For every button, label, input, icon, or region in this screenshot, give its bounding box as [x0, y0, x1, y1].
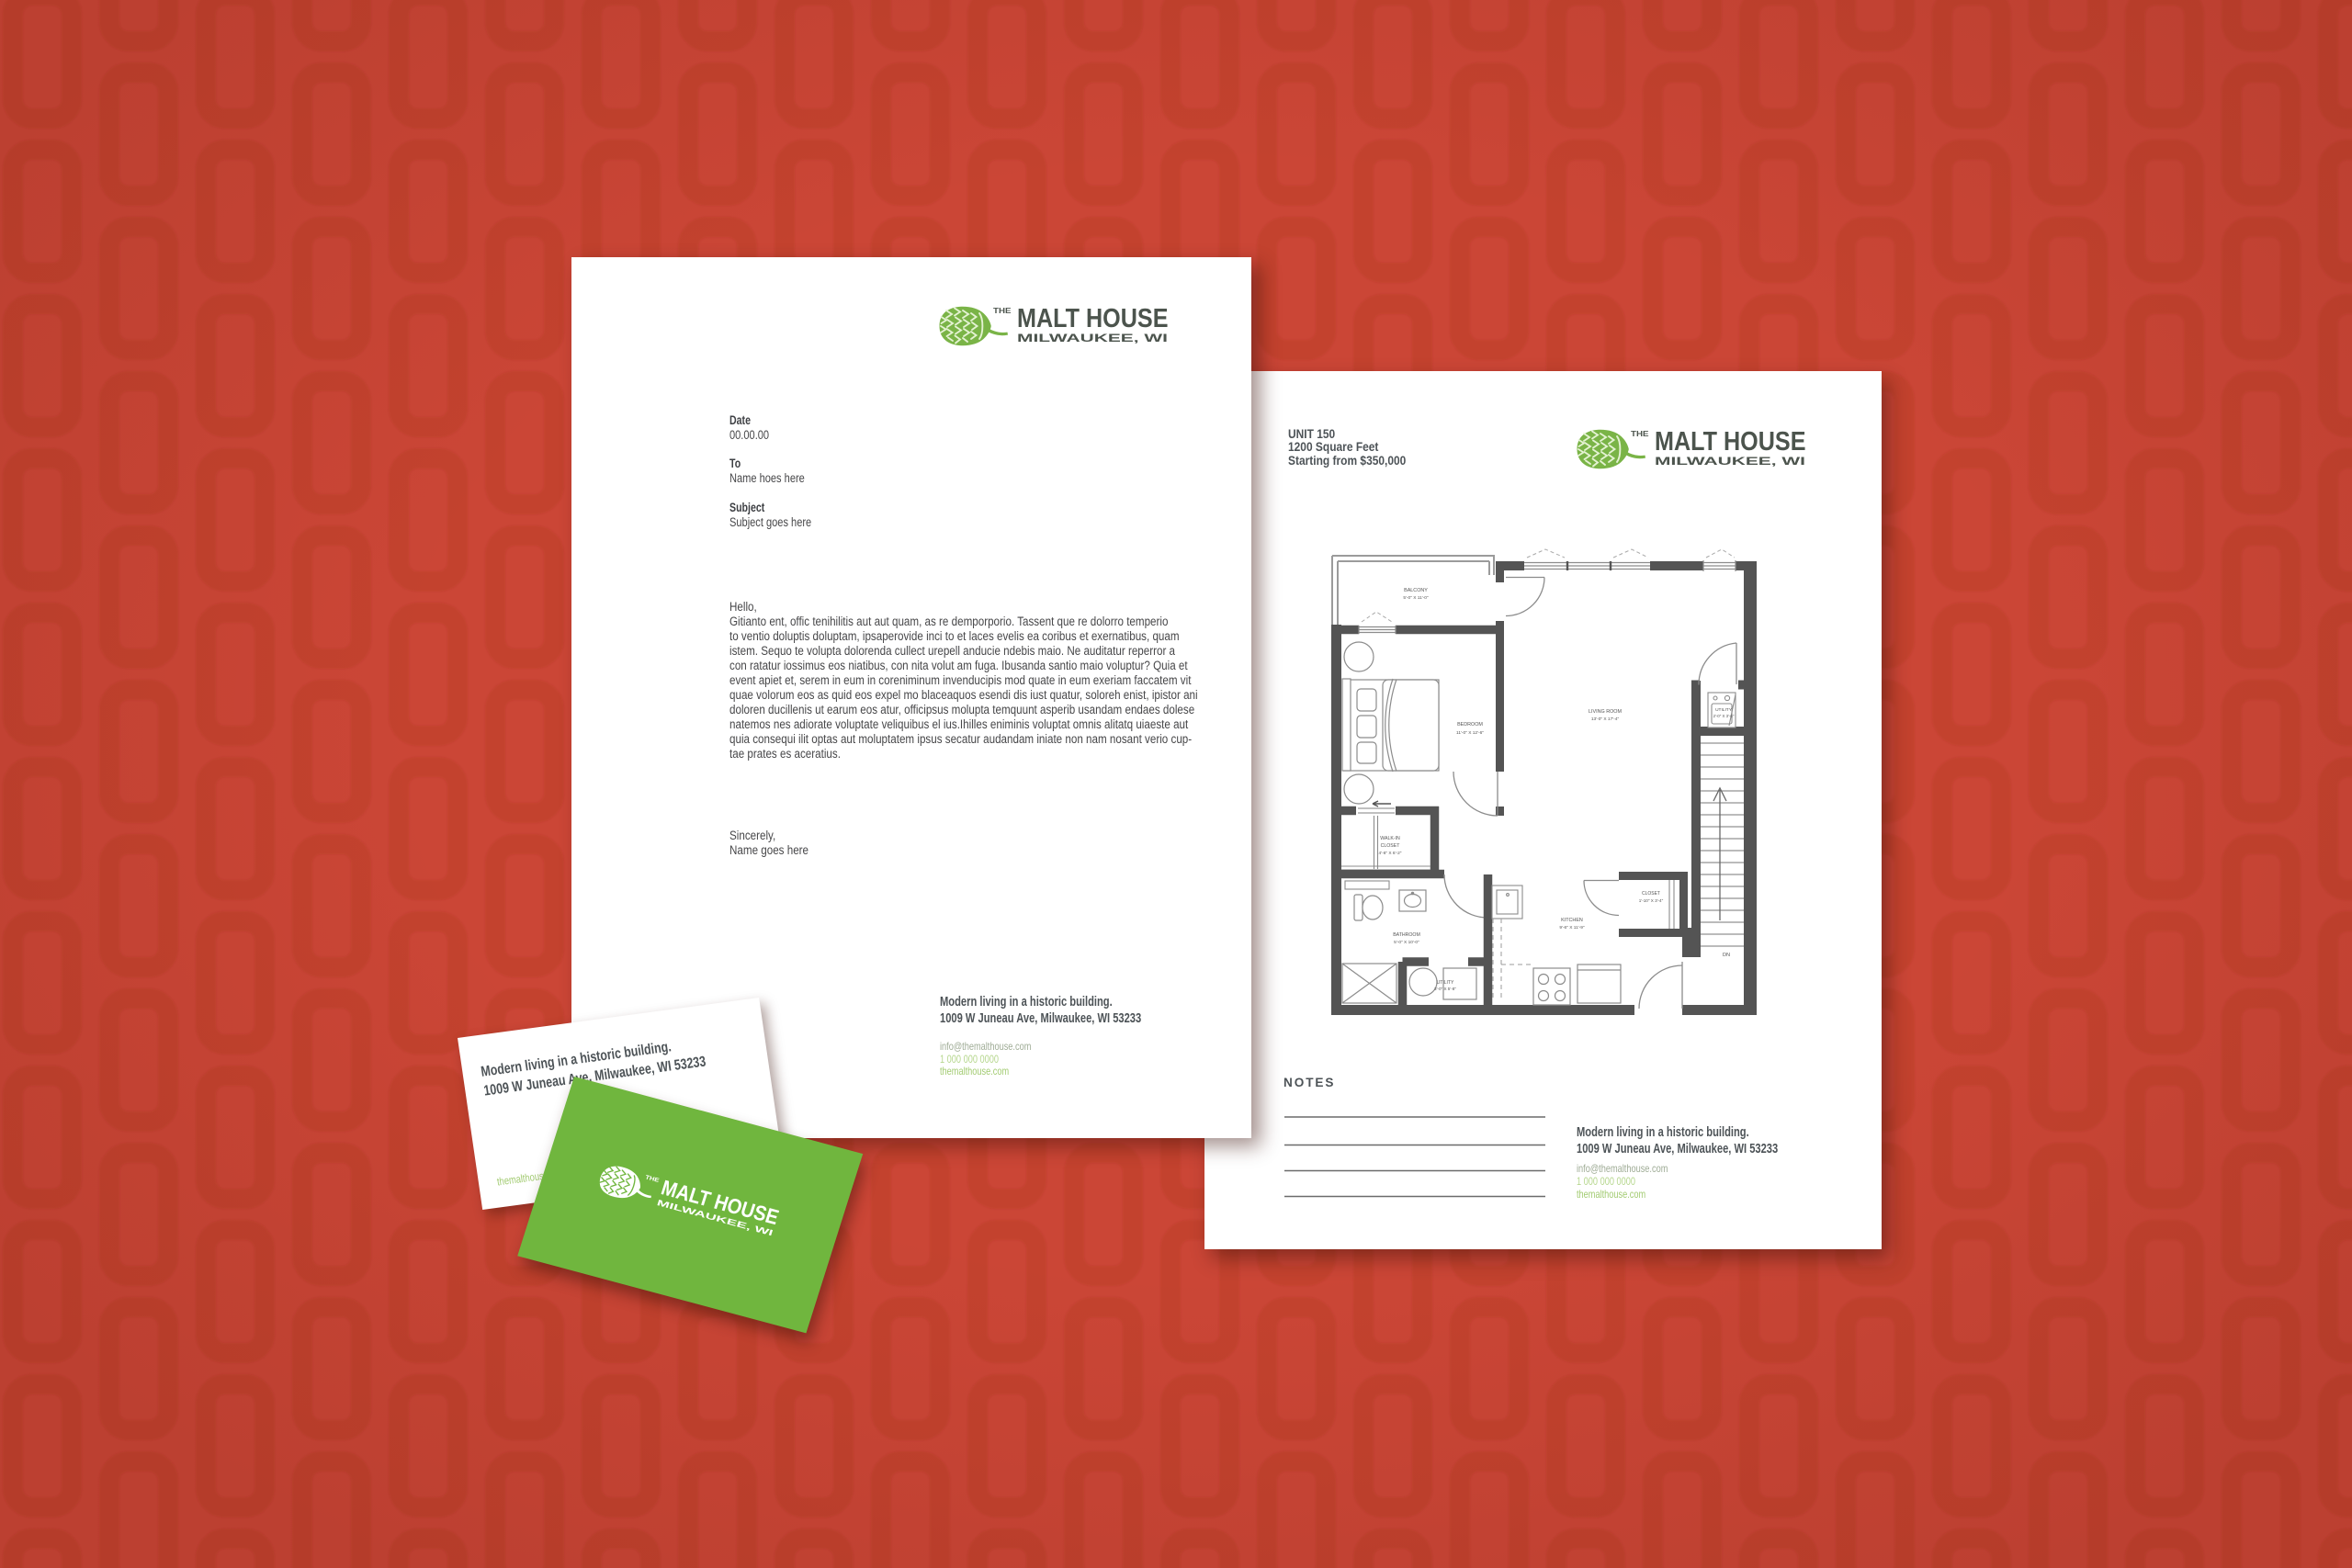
svg-text:THE: THE: [1631, 430, 1649, 438]
svg-text:MALT HOUSE: MALT HOUSE: [1655, 429, 1806, 457]
svg-text:9'-6" X 11'-9": 9'-6" X 11'-9": [1559, 925, 1585, 931]
svg-text:LIVING ROOM: LIVING ROOM: [1589, 709, 1622, 715]
svg-text:1'-10" X 3'-4": 1'-10" X 3'-4": [1639, 898, 1664, 903]
svg-text:MILWAUKEE, WI: MILWAUKEE, WI: [1017, 333, 1168, 344]
svg-text:CLOSET: CLOSET: [1381, 843, 1401, 849]
svg-text:BATHROOM: BATHROOM: [1393, 932, 1420, 938]
svg-text:THE: THE: [993, 307, 1012, 315]
svg-text:3'-0" X 5'-8": 3'-0" X 5'-8": [1434, 987, 1456, 991]
svg-text:5'-0" X 11'-0": 5'-0" X 11'-0": [1403, 595, 1429, 601]
svg-text:CLOSET: CLOSET: [1642, 891, 1660, 897]
svg-text:4'-6" X 6'-2": 4'-6" X 6'-2": [1379, 851, 1402, 856]
svg-text:UTILITY: UTILITY: [1437, 980, 1454, 986]
svg-text:BEDROOM: BEDROOM: [1457, 722, 1483, 728]
svg-text:KITCHEN: KITCHEN: [1561, 918, 1583, 923]
svg-text:MILWAUKEE, WI: MILWAUKEE, WI: [1655, 456, 1805, 468]
svg-text:UTILITY: UTILITY: [1715, 707, 1733, 713]
svg-text:MALT HOUSE: MALT HOUSE: [1017, 306, 1169, 333]
svg-text:BALCONY: BALCONY: [1404, 588, 1428, 593]
svg-text:13'-0" X 17'-4": 13'-0" X 17'-4": [1591, 716, 1620, 722]
svg-text:THE: THE: [644, 1174, 660, 1184]
svg-text:DN: DN: [1723, 953, 1730, 958]
svg-text:2'-0" X 3'-6": 2'-0" X 3'-6": [1713, 714, 1735, 718]
svg-text:5'-0" X 10'-0": 5'-0" X 10'-0": [1394, 940, 1419, 945]
svg-text:11'-0" X 12'-6": 11'-0" X 12'-6": [1456, 730, 1484, 736]
svg-text:WALK-IN: WALK-IN: [1380, 836, 1400, 841]
